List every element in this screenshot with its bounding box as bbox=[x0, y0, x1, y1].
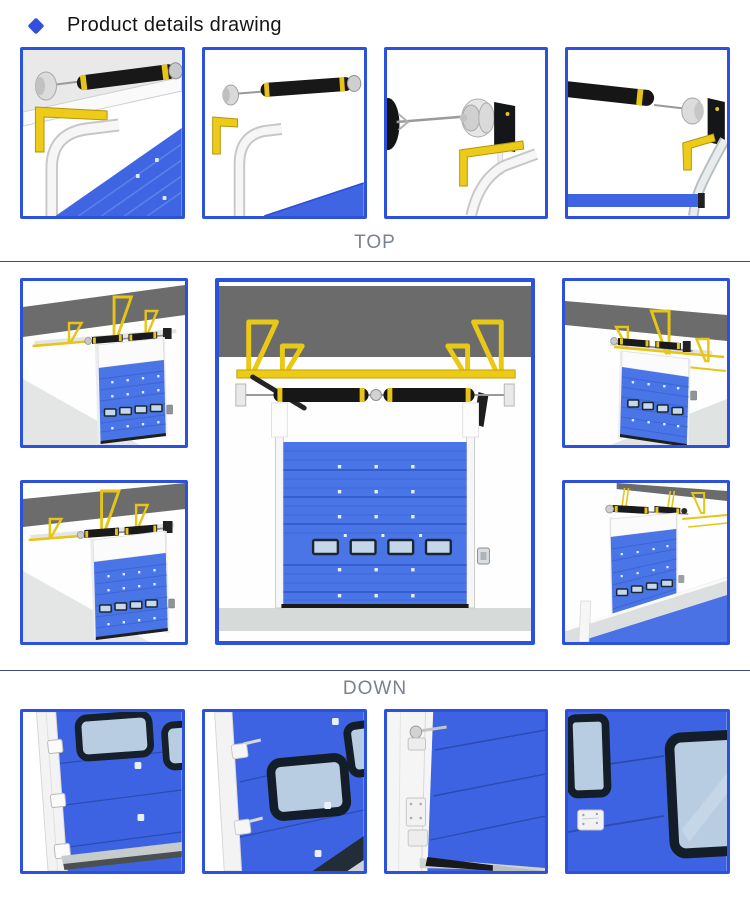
spring-plate-drawing bbox=[568, 50, 727, 216]
door-front-drawing bbox=[219, 282, 531, 641]
detail-image-spring-bracket bbox=[20, 47, 185, 219]
detail-image-spring-plate bbox=[565, 47, 730, 219]
horizontal-beam bbox=[237, 370, 515, 378]
panel-windows-drawing bbox=[23, 712, 182, 871]
window-left bbox=[569, 717, 608, 794]
panel-two-windows-drawing bbox=[568, 712, 727, 871]
panel-image-windows-hinges bbox=[20, 709, 185, 874]
panel-image-center-window bbox=[202, 709, 367, 874]
door-view-right-top bbox=[562, 278, 730, 448]
door-left-top-drawing bbox=[23, 281, 185, 445]
door-view-right-bottom bbox=[562, 480, 730, 645]
cable-drum-drawing bbox=[387, 50, 546, 216]
panel-center-window-drawing bbox=[205, 712, 364, 871]
panel-detail-row bbox=[0, 709, 750, 874]
top-section-label: TOP bbox=[0, 232, 750, 254]
page-title: Product details drawing bbox=[67, 14, 282, 37]
door-right-bottom-drawing bbox=[565, 483, 727, 642]
hinge-plate bbox=[578, 810, 604, 830]
door-view-front-main bbox=[215, 278, 535, 645]
panel-image-two-windows bbox=[565, 709, 730, 874]
section-header: Product details drawing bbox=[0, 0, 750, 47]
spring-detail-row bbox=[0, 47, 750, 219]
door-views-grid bbox=[20, 278, 730, 645]
right-column bbox=[562, 278, 730, 645]
window-top-right bbox=[346, 721, 363, 774]
top-divider-line bbox=[0, 261, 750, 262]
panel-image-track-hinge bbox=[384, 709, 549, 874]
door-view-left-bottom bbox=[20, 480, 188, 645]
door-panel bbox=[423, 712, 545, 871]
down-section-label: DOWN bbox=[0, 678, 750, 700]
left-column bbox=[20, 278, 188, 645]
window-center bbox=[270, 757, 347, 817]
door-top-edge bbox=[568, 194, 702, 207]
down-divider-line bbox=[0, 670, 750, 671]
door-left-bottom-drawing bbox=[23, 483, 185, 642]
detail-image-cable-drum bbox=[384, 47, 549, 219]
spring-bracket-drawing bbox=[23, 50, 182, 216]
spring-endcap-drawing bbox=[205, 50, 364, 216]
door-view-left-top bbox=[20, 278, 188, 448]
vertical-frame bbox=[387, 712, 433, 871]
torsion-springs bbox=[273, 388, 474, 402]
detail-image-spring-endcap bbox=[202, 47, 367, 219]
door-right-top-drawing bbox=[565, 281, 727, 445]
panel-track-hinge-drawing bbox=[387, 712, 546, 871]
diamond-icon bbox=[28, 17, 45, 34]
